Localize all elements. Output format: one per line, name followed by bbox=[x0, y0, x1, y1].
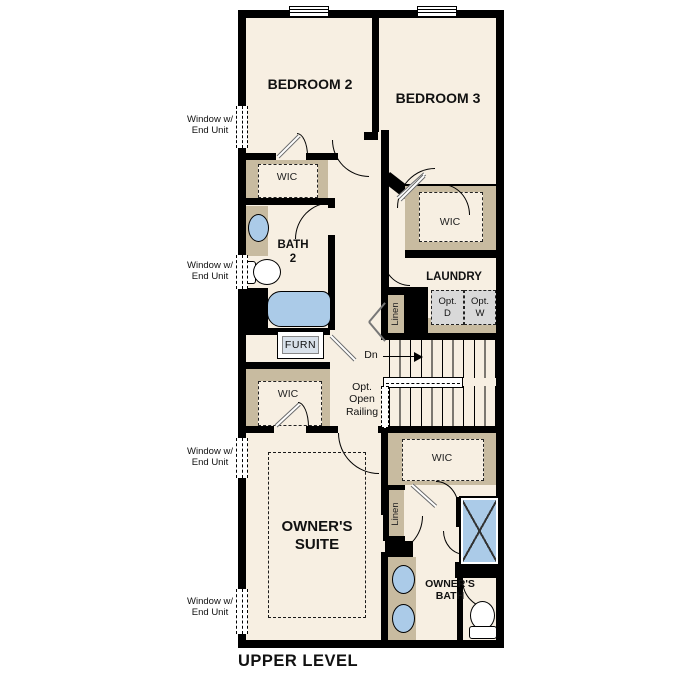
wall-linen-hall-top bbox=[381, 287, 428, 295]
floor-plan: Opt. D Opt. W FURN bbox=[0, 0, 687, 687]
stairs-center-railing bbox=[383, 377, 463, 388]
room-label-owners-suite: OWNER'S SUITE bbox=[256, 518, 378, 553]
window-end-unit-4 bbox=[236, 589, 248, 634]
owners-shower bbox=[459, 496, 500, 566]
wall-stairs-bottom bbox=[378, 426, 496, 433]
wall-exterior-bottom bbox=[238, 640, 504, 648]
wall-wic-owners-bottom-a bbox=[246, 426, 274, 433]
window-bedroom3-top bbox=[417, 6, 457, 17]
wall-hall-east-upper bbox=[381, 130, 389, 255]
window-end-unit-1 bbox=[236, 106, 248, 148]
window-note-1: Window w/ End Unit bbox=[184, 114, 236, 136]
optional-dryer-box: Opt. D bbox=[431, 290, 464, 325]
bath2-tub bbox=[267, 291, 331, 327]
wall-linen-hall-right bbox=[404, 295, 428, 335]
room-label-bedroom2: BEDROOM 2 bbox=[252, 76, 368, 93]
wall-linen-hall-left bbox=[381, 295, 388, 335]
window-end-unit-2 bbox=[236, 255, 248, 289]
window-note-3: Window w/ End Unit bbox=[184, 446, 236, 468]
wall-bedroom-divider bbox=[372, 18, 379, 132]
stairs-railing-note: Opt. Open Railing bbox=[338, 381, 386, 418]
closet-label-linen-owners: Linen bbox=[390, 494, 402, 534]
room-label-bath2: BATH 2 bbox=[271, 239, 315, 266]
stairs-upper-flight bbox=[389, 340, 496, 378]
stairs-down-arrow-line bbox=[383, 356, 415, 357]
optional-washer-label: Opt. W bbox=[471, 296, 489, 318]
window-note-2: Window w/ End Unit bbox=[184, 260, 236, 282]
closet-label-wic-owners-rear: WIC bbox=[416, 452, 468, 464]
wall-wic2-bath2 bbox=[246, 198, 328, 205]
furnace-unit: FURN bbox=[277, 331, 324, 359]
stairs-down-label: Dn bbox=[360, 349, 382, 361]
furnace-label: FURN bbox=[285, 339, 316, 351]
window-note-4: Window w/ End Unit bbox=[184, 596, 236, 618]
window-end-unit-3 bbox=[236, 438, 248, 478]
wall-bedroom-divider-jamb bbox=[364, 132, 378, 140]
wall-exterior-top bbox=[238, 10, 504, 18]
owners-toilet-tank bbox=[469, 626, 497, 639]
room-label-owners-bath: OWNER'S BATH bbox=[408, 578, 492, 603]
owners-sink-2 bbox=[392, 604, 415, 633]
stairs-down-arrow-head bbox=[414, 352, 423, 362]
stairs-lower-flight bbox=[389, 386, 496, 426]
wall-furn-bottom bbox=[246, 362, 330, 369]
furnace-core: FURN bbox=[282, 336, 319, 354]
bath2-sink bbox=[248, 214, 269, 242]
wall-wic-owners-bottom-b bbox=[306, 426, 338, 433]
wall-bedroom2-bottom-b bbox=[306, 153, 338, 160]
optional-dryer-label: Opt. D bbox=[439, 296, 457, 318]
wall-stairs-top bbox=[381, 333, 496, 340]
plan-title: UPPER LEVEL bbox=[238, 652, 468, 671]
window-bedroom2-top bbox=[289, 6, 329, 17]
room-label-laundry: LAUNDRY bbox=[412, 271, 496, 285]
wall-bedroom2-bottom-a bbox=[246, 153, 276, 160]
wall-suite-bath-divider-b bbox=[381, 552, 388, 640]
wall-bath2-tub-block bbox=[246, 288, 268, 332]
closet-label-wic-bedroom2: WIC bbox=[262, 171, 312, 183]
wall-laundry-top bbox=[405, 250, 496, 258]
closet-label-wic-bedroom3: WIC bbox=[425, 216, 475, 228]
closet-label-wic-owners-front: WIC bbox=[262, 388, 314, 400]
optional-washer-box: Opt. W bbox=[464, 290, 496, 325]
closet-label-linen-hall: Linen bbox=[390, 294, 402, 334]
room-label-bedroom3: BEDROOM 3 bbox=[385, 90, 491, 107]
